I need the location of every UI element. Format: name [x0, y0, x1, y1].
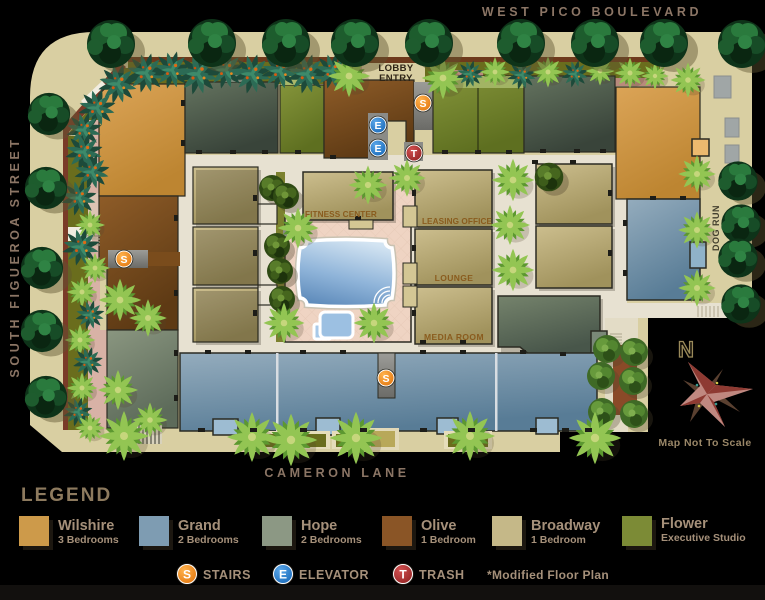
svg-text:2 Bedrooms: 2 Bedrooms — [301, 534, 362, 546]
svg-text:*Modified Floor Plan: *Modified Floor Plan — [487, 568, 609, 582]
svg-text:Executive Studio: Executive Studio — [661, 532, 746, 544]
svg-text:Map Not To Scale: Map Not To Scale — [658, 437, 751, 449]
svg-text:ELEVATOR: ELEVATOR — [299, 568, 369, 582]
svg-text:MEDIA ROOM: MEDIA ROOM — [424, 332, 484, 342]
svg-text:S: S — [120, 254, 127, 266]
svg-text:FITNESS CENTER: FITNESS CENTER — [305, 210, 377, 219]
svg-text:Hope: Hope — [301, 518, 337, 534]
svg-text:LEASING OFFICE: LEASING OFFICE — [422, 217, 493, 226]
svg-text:Olive: Olive — [421, 518, 456, 534]
svg-text:ENTRY: ENTRY — [379, 73, 413, 84]
svg-text:E: E — [374, 120, 381, 132]
svg-text:CAMERON LANE: CAMERON LANE — [264, 466, 409, 480]
svg-text:N: N — [678, 337, 694, 362]
svg-text:Broadway: Broadway — [531, 518, 600, 534]
svg-text:T: T — [411, 148, 418, 160]
svg-text:E: E — [374, 143, 381, 155]
svg-text:S: S — [183, 568, 191, 582]
svg-text:LEGEND: LEGEND — [21, 485, 112, 506]
svg-text:3 Bedrooms: 3 Bedrooms — [58, 534, 119, 546]
svg-text:LOUNGE: LOUNGE — [435, 273, 474, 283]
svg-text:SOUTH FIGUEROA STREET: SOUTH FIGUEROA STREET — [8, 136, 22, 377]
svg-text:DOG RUN: DOG RUN — [711, 205, 721, 251]
svg-text:Flower: Flower — [661, 516, 708, 532]
svg-text:2 Bedrooms: 2 Bedrooms — [178, 534, 239, 546]
svg-text:E: E — [279, 568, 287, 582]
svg-text:TRASH: TRASH — [419, 568, 465, 582]
svg-text:STAIRS: STAIRS — [203, 568, 251, 582]
svg-text:S: S — [419, 98, 426, 110]
svg-text:T: T — [399, 568, 407, 582]
svg-text:WEST PICO BOULEVARD: WEST PICO BOULEVARD — [482, 5, 702, 19]
svg-text:1 Bedroom: 1 Bedroom — [531, 534, 586, 546]
svg-text:Grand: Grand — [178, 518, 221, 534]
svg-text:1 Bedroom: 1 Bedroom — [421, 534, 476, 546]
svg-text:Wilshire: Wilshire — [58, 518, 114, 534]
svg-text:S: S — [382, 373, 389, 385]
